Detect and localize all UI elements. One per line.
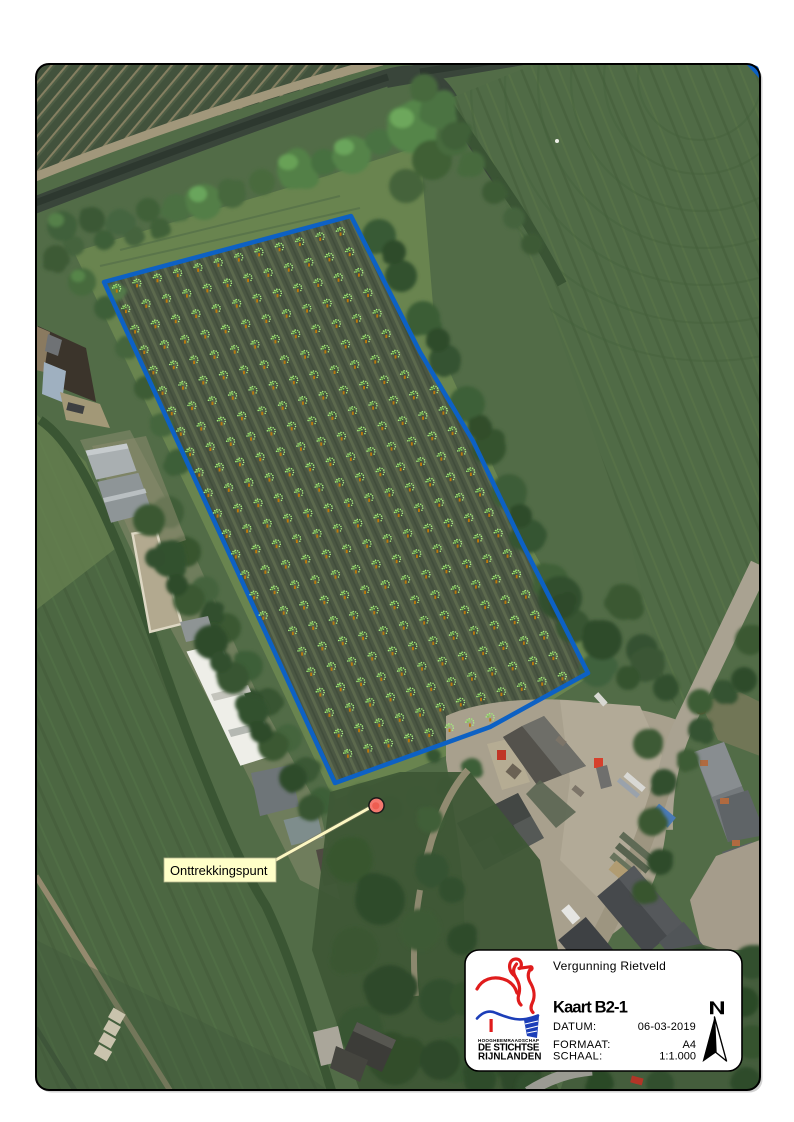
svg-text:Kaart B2-1: Kaart B2-1	[553, 999, 628, 1017]
svg-text:DATUM:: DATUM:	[553, 1021, 596, 1033]
svg-text:Onttrekkingspunt: Onttrekkingspunt	[170, 863, 268, 878]
svg-text:A4: A4	[683, 1039, 696, 1051]
svg-text:Vergunning Rietveld: Vergunning Rietveld	[553, 959, 666, 973]
svg-text:FORMAAT:: FORMAAT:	[553, 1039, 611, 1051]
svg-text:06-03-2019: 06-03-2019	[638, 1021, 696, 1033]
svg-text:RIJNLANDEN: RIJNLANDEN	[478, 1052, 541, 1063]
svg-text:SCHAAL:: SCHAAL:	[553, 1051, 603, 1063]
svg-text:1:1.000: 1:1.000	[659, 1051, 696, 1063]
